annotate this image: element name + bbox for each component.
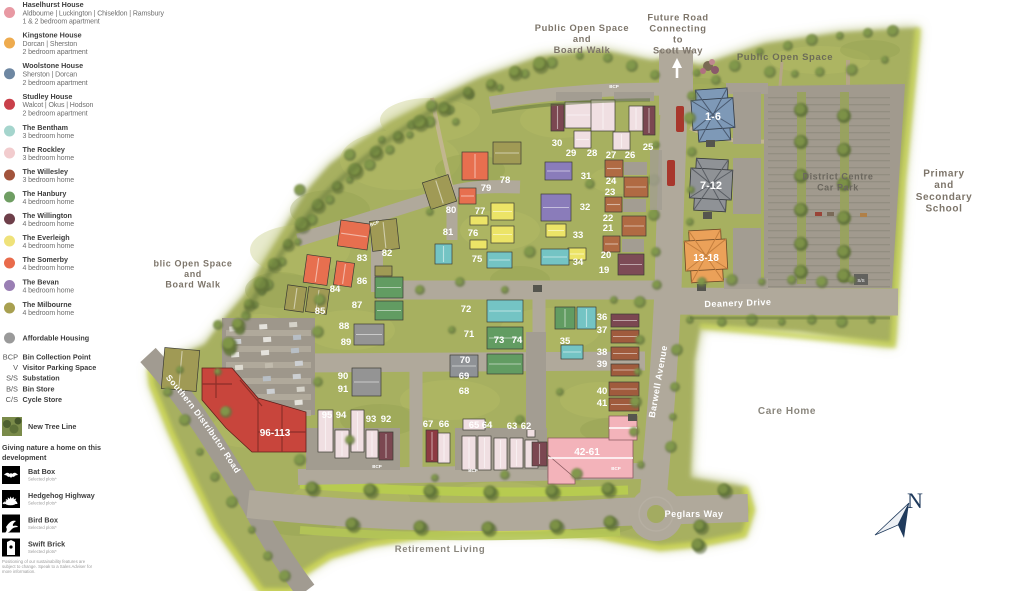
svg-text:66: 66 (439, 419, 450, 430)
svg-text:84: 84 (330, 284, 341, 295)
svg-text:Substation: Substation (23, 374, 60, 383)
svg-text:42-61: 42-61 (574, 447, 600, 458)
svg-text:4 bedroom home: 4 bedroom home (23, 243, 75, 250)
svg-text:BCP: BCP (468, 468, 478, 473)
svg-text:79: 79 (481, 183, 492, 194)
svg-text:69: 69 (459, 371, 470, 382)
svg-text:91: 91 (338, 384, 349, 395)
svg-text:87: 87 (352, 300, 363, 311)
svg-text:4 bedroom home: 4 bedroom home (23, 310, 75, 317)
svg-text:Selected plots*: Selected plots* (28, 549, 57, 554)
svg-text:78: 78 (500, 175, 511, 186)
svg-text:88: 88 (339, 321, 350, 332)
svg-text:28: 28 (587, 148, 598, 159)
svg-text:75: 75 (472, 254, 483, 265)
svg-text:26: 26 (625, 150, 636, 161)
svg-text:89: 89 (341, 337, 352, 348)
svg-text:BCP: BCP (3, 353, 18, 362)
svg-text:4 bedroom home: 4 bedroom home (23, 221, 75, 228)
svg-text:Selected plots*: Selected plots* (28, 477, 57, 482)
svg-text:93: 93 (366, 414, 377, 425)
svg-text:82: 82 (382, 248, 393, 259)
svg-text:S/S: S/S (857, 278, 864, 283)
svg-text:BCP: BCP (609, 84, 619, 89)
svg-text:41: 41 (597, 398, 608, 409)
svg-text:80: 80 (446, 205, 457, 216)
svg-text:3 bedroom home: 3 bedroom home (23, 177, 75, 184)
svg-text:4 bedroom home: 4 bedroom home (23, 199, 75, 206)
svg-text:Bin Collection Point: Bin Collection Point (23, 353, 92, 362)
svg-text:4 bedroom home: 4 bedroom home (23, 265, 75, 272)
svg-text:63: 63 (507, 421, 518, 432)
svg-text:67: 67 (423, 419, 434, 430)
svg-text:Retirement Living: Retirement Living (395, 544, 485, 555)
svg-text:39: 39 (597, 359, 608, 370)
svg-text:86: 86 (357, 276, 368, 287)
svg-text:N: N (907, 488, 923, 513)
svg-text:2 bedroom apartment: 2 bedroom apartment (23, 110, 88, 117)
svg-text:20: 20 (601, 250, 612, 261)
svg-text:The Bevan: The Bevan (23, 277, 59, 286)
svg-text:Walcot | Okus | Hodson: Walcot | Okus | Hodson (23, 102, 94, 109)
svg-text:76: 76 (468, 228, 479, 239)
svg-text:7-12: 7-12 (700, 180, 722, 192)
svg-text:The Willesley: The Willesley (23, 167, 68, 176)
svg-text:Woolstone House: Woolstone House (23, 61, 84, 70)
svg-text:3 bedroom home: 3 bedroom home (23, 155, 75, 162)
svg-text:The Everleigh: The Everleigh (23, 233, 70, 242)
svg-text:Visitor Parking Space: Visitor Parking Space (23, 363, 97, 372)
svg-text:Kingstone House: Kingstone House (23, 31, 82, 40)
svg-text:40: 40 (597, 386, 608, 397)
svg-text:95: 95 (322, 410, 333, 421)
svg-text:1 & 2 bedroom apartment: 1 & 2 bedroom apartment (23, 19, 100, 26)
svg-text:Dorcan | Sherston: Dorcan | Sherston (23, 41, 78, 48)
svg-text:33: 33 (573, 230, 584, 241)
svg-text:V: V (13, 363, 18, 372)
svg-text:83: 83 (357, 253, 368, 264)
svg-text:Care Home: Care Home (758, 406, 816, 417)
svg-text:64: 64 (482, 420, 493, 431)
svg-text:Bird Box: Bird Box (28, 516, 58, 525)
svg-text:71: 71 (464, 329, 475, 340)
svg-text:35: 35 (560, 336, 571, 347)
svg-text:B/S: B/S (6, 385, 18, 394)
svg-text:BCP: BCP (611, 466, 621, 471)
svg-text:Affordable Housing: Affordable Housing (23, 334, 90, 343)
svg-text:more information.: more information. (2, 569, 35, 574)
svg-text:The Bentham: The Bentham (23, 123, 69, 132)
svg-text:70: 70 (460, 355, 471, 366)
svg-text:Swift Brick: Swift Brick (28, 540, 65, 549)
svg-text:72: 72 (461, 304, 472, 315)
svg-text:S/S: S/S (6, 374, 18, 383)
svg-text:73: 73 (494, 335, 505, 346)
svg-text:37: 37 (597, 325, 608, 336)
svg-text:94: 94 (336, 410, 347, 421)
svg-text:13-18: 13-18 (693, 253, 719, 264)
svg-text:New Tree Line: New Tree Line (28, 422, 76, 431)
svg-text:96-113: 96-113 (260, 428, 291, 439)
svg-text:34: 34 (573, 257, 584, 268)
svg-text:30: 30 (552, 138, 563, 149)
svg-text:BCP: BCP (372, 464, 382, 469)
svg-text:Public Open Space: Public Open Space (737, 52, 833, 63)
svg-text:3 bedroom home: 3 bedroom home (23, 133, 75, 140)
svg-text:31: 31 (581, 171, 592, 182)
svg-text:Bat Box: Bat Box (28, 467, 55, 476)
svg-text:21: 21 (603, 223, 614, 234)
svg-text:38: 38 (597, 347, 608, 358)
svg-text:27: 27 (606, 150, 617, 161)
svg-text:4 bedroom home: 4 bedroom home (23, 288, 75, 295)
svg-text:85: 85 (315, 306, 326, 317)
svg-text:19: 19 (599, 265, 610, 276)
svg-text:68: 68 (459, 386, 470, 397)
svg-text:Peglars Way: Peglars Way (665, 509, 724, 519)
svg-text:74: 74 (512, 335, 523, 346)
svg-text:Giving nature a home on this: Giving nature a home on this (2, 443, 101, 452)
svg-text:Bin Store: Bin Store (23, 385, 55, 394)
svg-text:Cycle Store: Cycle Store (23, 395, 63, 404)
svg-text:92: 92 (381, 414, 392, 425)
svg-text:Selected plots*: Selected plots* (28, 501, 57, 506)
svg-text:90: 90 (338, 371, 349, 382)
svg-text:25: 25 (643, 142, 654, 153)
svg-text:77: 77 (475, 206, 486, 217)
svg-text:Selected plots*: Selected plots* (28, 525, 57, 530)
svg-text:32: 32 (580, 202, 591, 213)
svg-text:development: development (2, 453, 47, 462)
svg-text:24: 24 (606, 176, 617, 187)
svg-text:The Hanbury: The Hanbury (23, 189, 67, 198)
svg-text:Hedgehog Highway: Hedgehog Highway (28, 491, 95, 500)
svg-text:2 bedroom apartment: 2 bedroom apartment (23, 49, 88, 56)
svg-text:81: 81 (443, 227, 454, 238)
svg-text:Studley House: Studley House (23, 92, 73, 101)
svg-text:Aldbourne | Luckington | Chise: Aldbourne | Luckington | Chiseldon | Ram… (23, 10, 165, 17)
svg-text:Sherston | Dorcan: Sherston | Dorcan (23, 72, 78, 79)
svg-text:65: 65 (469, 420, 480, 431)
svg-text:C/S: C/S (6, 395, 18, 404)
svg-text:The Milbourne: The Milbourne (23, 300, 72, 309)
svg-text:29: 29 (566, 148, 577, 159)
svg-text:The Rockley: The Rockley (23, 145, 65, 154)
svg-text:Haselhurst House: Haselhurst House (23, 0, 84, 9)
svg-text:23: 23 (605, 187, 616, 198)
svg-text:2 bedroom apartment: 2 bedroom apartment (23, 80, 88, 87)
svg-text:The Somerby: The Somerby (23, 255, 69, 264)
svg-text:36: 36 (597, 312, 608, 323)
svg-text:1-6: 1-6 (705, 111, 721, 123)
svg-text:62: 62 (521, 421, 532, 432)
svg-text:The Willington: The Willington (23, 211, 72, 220)
